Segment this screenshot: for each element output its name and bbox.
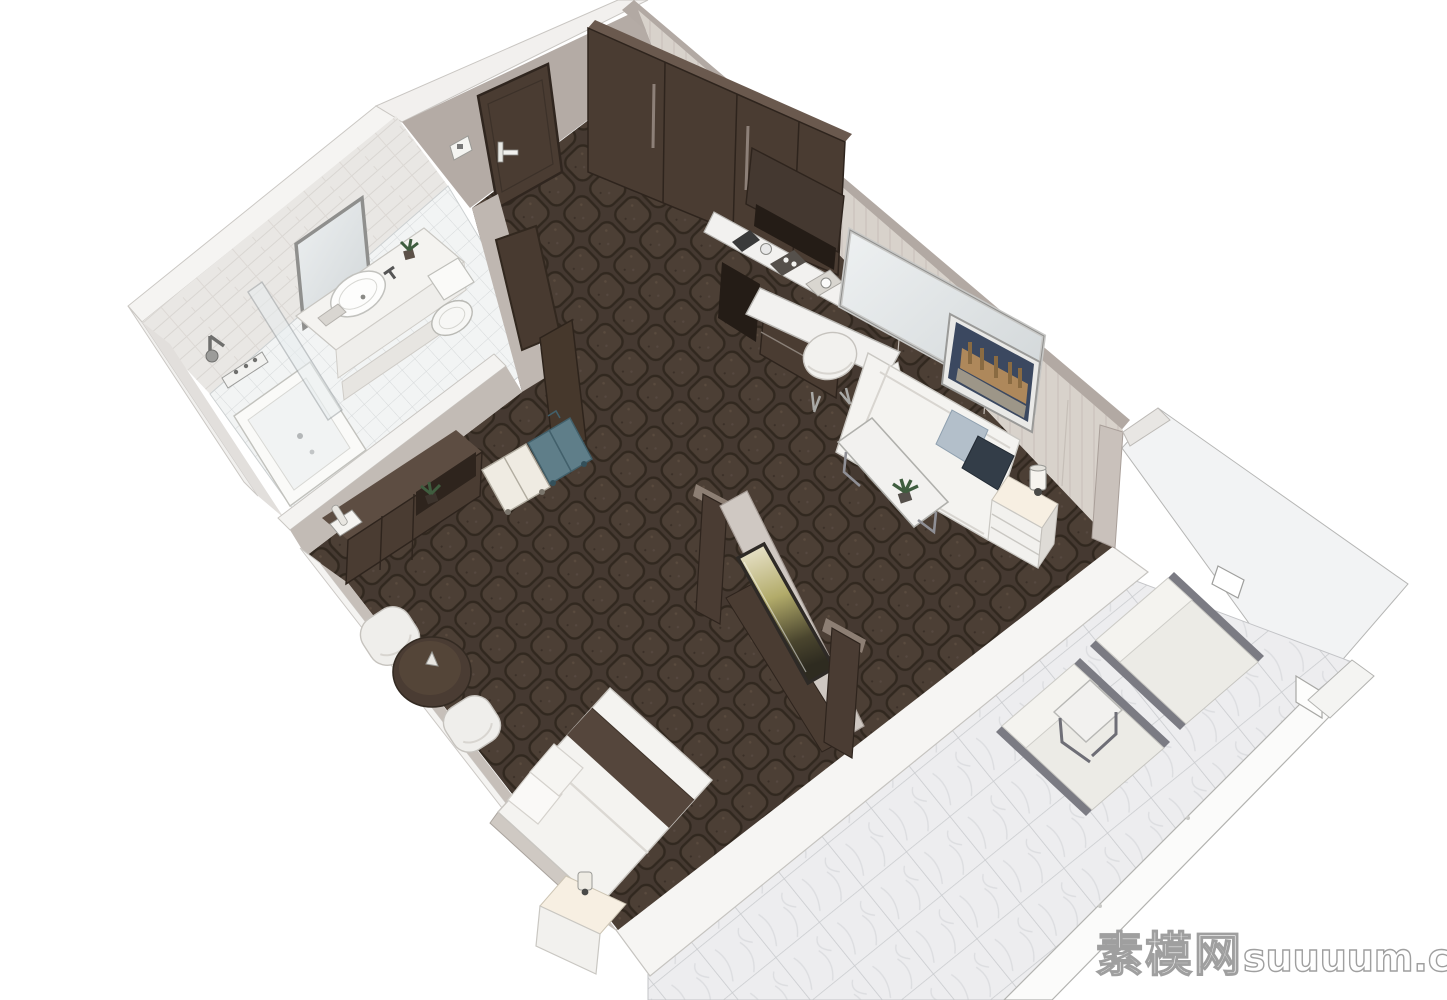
- floorplan-render: [0, 0, 1447, 1000]
- render-canvas: 素模网suuuum.com: [0, 0, 1447, 1000]
- railing-bolt: [1186, 816, 1190, 820]
- railing-bolt: [1098, 904, 1102, 908]
- door-lock-plate: [498, 142, 503, 162]
- round-side-table: [393, 637, 471, 707]
- switch-toggle: [457, 144, 463, 149]
- tub-drain: [297, 433, 303, 439]
- watermark-cn: 素模网: [1096, 928, 1243, 983]
- watermark: 素模网suuuum.com: [1096, 916, 1447, 985]
- door-handle: [502, 150, 518, 155]
- watermark-en: suuuum.com: [1243, 936, 1447, 980]
